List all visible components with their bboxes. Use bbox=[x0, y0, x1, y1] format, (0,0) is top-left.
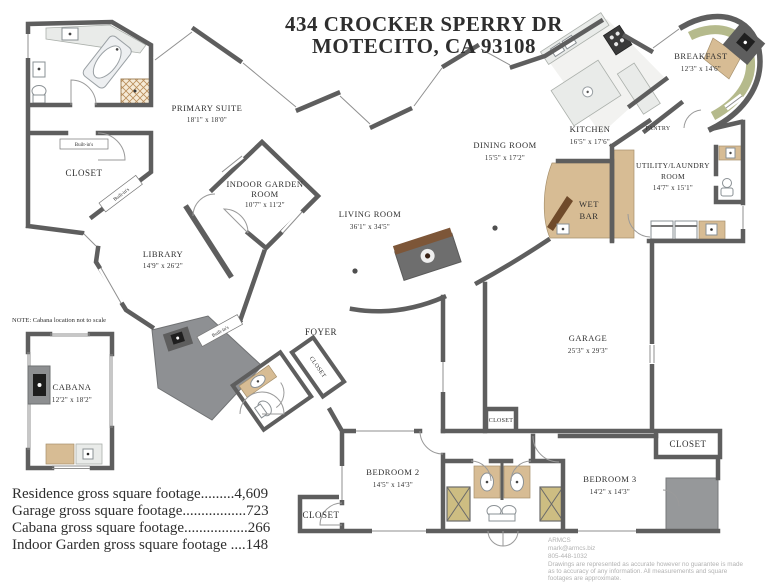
room-label-library: LIBRARY bbox=[143, 249, 183, 259]
closet-label-bedroom2: CLOSET bbox=[302, 510, 339, 520]
shared-bath-fixtures bbox=[447, 461, 563, 521]
sqft-residence: Residence gross square footage.........4… bbox=[12, 486, 268, 502]
sqft-indoor-garden: Indoor Garden gross square footage ....1… bbox=[12, 537, 268, 553]
room-label-dining: DINING ROOM bbox=[473, 140, 536, 150]
room-dims-cabana: 12'2" x 18'2" bbox=[52, 396, 92, 404]
dryer bbox=[675, 221, 697, 239]
room-dims-dining: 15'5" x 17'2" bbox=[485, 154, 525, 162]
column-dot bbox=[352, 268, 357, 273]
room-label-bedroom2: BEDROOM 2 bbox=[366, 467, 419, 477]
living-fireplace bbox=[393, 228, 461, 281]
room-label-indoor-garden-2: ROOM bbox=[251, 189, 279, 199]
room-dims-bedroom2: 14'5" x 14'3" bbox=[373, 481, 413, 489]
room-dims-bedroom3: 14'2" x 14'3" bbox=[590, 488, 630, 496]
room-label-kitchen: KITCHEN bbox=[570, 124, 611, 134]
room-dims-kitchen: 16'5" x 17'6" bbox=[570, 138, 610, 146]
closet-label-primary: CLOSET bbox=[65, 168, 102, 178]
toilet-utility bbox=[723, 179, 732, 188]
room-label-pantry: PANTRY bbox=[646, 126, 671, 132]
bedroom3-patio bbox=[666, 478, 718, 531]
built-ins-label: Built-in's bbox=[75, 143, 93, 148]
credits-disclaimer-1: Drawings are represented as accurate how… bbox=[548, 561, 743, 568]
utility-fixtures bbox=[651, 146, 742, 239]
cabana-cabinet bbox=[46, 444, 74, 464]
room-label-utility-2: ROOM bbox=[661, 172, 685, 181]
room-label-bedroom3: BEDROOM 3 bbox=[583, 474, 636, 484]
closet-label-hall: CLOSET bbox=[489, 418, 514, 424]
garage-door bbox=[648, 344, 656, 364]
closet-label-right: CLOSET bbox=[669, 439, 706, 449]
room-label-utility-1: UTILITY/LAUNDRY bbox=[636, 161, 710, 170]
room-dims-indoor-garden: 10'7" x 11'2" bbox=[245, 201, 285, 209]
page-title-line1: 434 CROCKER SPERRY DR bbox=[285, 12, 563, 36]
room-label-garage: GARAGE bbox=[569, 333, 607, 343]
primary-bath-fixtures bbox=[32, 25, 150, 104]
cabana-note: NOTE: Cabana location not to scale bbox=[12, 317, 106, 324]
room-label-wet-bar-2: BAR bbox=[580, 211, 599, 221]
sqft-garage: Garage gross square footage.............… bbox=[12, 503, 269, 519]
credits-disclaimer-3: footages are approximate. bbox=[548, 575, 621, 582]
floor-plan-canvas: Built-in's Built-in's Built-in's 434 CRO… bbox=[0, 0, 770, 586]
room-dims-garage: 25'3" x 29'3" bbox=[568, 347, 608, 355]
credits-company: ARMCS bbox=[548, 537, 571, 544]
page-title-line2: MOTECITO, CA 93108 bbox=[312, 34, 536, 58]
room-label-cabana: CABANA bbox=[53, 382, 92, 392]
room-label-wet-bar-1: WET bbox=[579, 199, 599, 209]
room-dims-living: 36'1" x 34'5" bbox=[350, 223, 390, 231]
credits-disclaimer-2: as to accuracy of any information. All m… bbox=[548, 568, 728, 575]
room-dims-breakfast: 12'3" x 14'6" bbox=[681, 65, 721, 73]
room-dims-library: 14'9" x 26'2" bbox=[143, 262, 183, 270]
room-label-indoor-garden-1: INDOOR GARDEN bbox=[226, 179, 303, 189]
room-dims-primary-suite: 18'1" x 18'0" bbox=[187, 116, 227, 124]
room-label-breakfast: BREAKFAST bbox=[674, 51, 728, 61]
floor-plan-page: Built-in's Built-in's Built-in's 434 CRO… bbox=[0, 0, 770, 586]
credits-phone: 805-448-1032 bbox=[548, 553, 588, 560]
sqft-cabana: Cabana gross square footage.............… bbox=[12, 520, 271, 536]
credits-email: mark@armcs.biz bbox=[548, 545, 595, 552]
room-label-living: LIVING ROOM bbox=[339, 209, 401, 219]
room-label-foyer: FOYER bbox=[305, 327, 337, 337]
room-dims-utility: 14'7" x 15'1" bbox=[653, 184, 693, 192]
room-label-primary-suite: PRIMARY SUITE bbox=[172, 103, 243, 113]
washer bbox=[651, 221, 673, 239]
column-dot bbox=[492, 225, 497, 230]
